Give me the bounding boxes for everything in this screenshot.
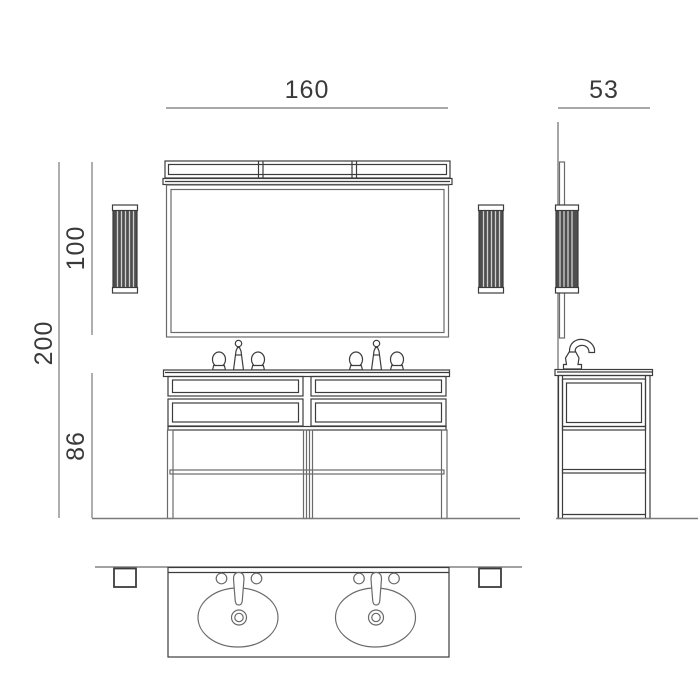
- faucet-spout: [372, 348, 382, 371]
- sconce-cap-bottom: [479, 288, 504, 294]
- mirror-outer-frame: [167, 185, 449, 337]
- faucet-knob: [235, 340, 241, 346]
- faucet-handle-left: [213, 352, 226, 370]
- countertop-front: [164, 370, 450, 377]
- sconce-cap-top: [479, 205, 504, 211]
- faucet-spout: [234, 348, 244, 371]
- drawer-fronts: [168, 377, 446, 431]
- front-elevation: [92, 161, 520, 519]
- drawer-row1-right-panel: [316, 380, 442, 393]
- sconce-body: [556, 210, 578, 288]
- faucet-spout-curve: [569, 339, 594, 352]
- sconce-cap-top: [113, 205, 138, 211]
- wall-sconce-side: [556, 205, 579, 293]
- faucet-set-left: [213, 340, 265, 370]
- handle-plan-left: [216, 573, 227, 584]
- faucet-plan: [371, 573, 382, 606]
- handle-plan-left: [354, 573, 365, 584]
- overall-height-dim-label: 200: [30, 321, 58, 366]
- mirror-height-dim-label: 100: [62, 226, 90, 271]
- front-width-dim-label: 160: [285, 76, 330, 104]
- dimension-lines: [59, 108, 650, 518]
- side-depth-dim-label: 53: [589, 76, 619, 104]
- mirror-inner-frame: [171, 190, 444, 333]
- faucet-handle-right: [391, 352, 404, 370]
- drawer-row1-left-panel: [173, 380, 299, 393]
- side-cabinet: [555, 370, 653, 519]
- plan-view: [95, 567, 522, 657]
- sink-basin-left: [198, 573, 278, 648]
- mirror: [167, 185, 449, 337]
- sconce-plan-right: [479, 569, 501, 588]
- drain-outer: [232, 610, 247, 625]
- cabinet-rail-1: [563, 427, 646, 431]
- counter-slab: [164, 370, 450, 377]
- vanity-legs: [168, 430, 448, 519]
- wall-sconce-left: [113, 205, 138, 293]
- sconce-cap-bottom: [556, 288, 579, 294]
- countertop-plan: [168, 568, 449, 658]
- faucet-side: [564, 339, 595, 369]
- faucet-handle-right: [252, 352, 265, 370]
- drain-inner: [372, 613, 380, 621]
- cabinet-opening-frame: [563, 379, 646, 427]
- sconce-plan-left: [114, 569, 136, 588]
- handle-plan-right: [251, 573, 262, 584]
- drain-outer: [369, 610, 384, 625]
- handle-plan-right: [389, 573, 400, 584]
- sconce-cap-top: [556, 205, 579, 211]
- sink-basin-right: [336, 573, 416, 648]
- drain-inner: [235, 613, 243, 621]
- mirror-top-shelf: [163, 161, 452, 185]
- technical-drawing-page: 160 53 200 100 86: [0, 0, 700, 700]
- faucet-body: [564, 352, 582, 370]
- vanity-technical-drawing: 160 53 200 100 86: [0, 0, 700, 700]
- cabinet-opening-panel: [567, 383, 642, 423]
- drawer-row2-right-panel: [316, 403, 442, 422]
- cabinet-rail-2: [563, 470, 646, 474]
- faucet-set-right: [350, 340, 404, 370]
- faucet-handle-left: [350, 352, 363, 370]
- shelf-outer-frame: [165, 161, 450, 178]
- shelf-inner-frame: [169, 165, 447, 175]
- side-elevation: [555, 122, 698, 519]
- cabinet-height-dim-label: 86: [62, 431, 90, 461]
- wall-sconce-right: [479, 205, 504, 293]
- cabinet-outer: [559, 376, 651, 519]
- counter-outline-plan: [168, 568, 449, 658]
- faucet-plan: [234, 573, 245, 606]
- drawer-row2-left-panel: [173, 403, 299, 422]
- sconce-cap-bottom: [113, 288, 138, 294]
- faucet-knob: [373, 340, 379, 346]
